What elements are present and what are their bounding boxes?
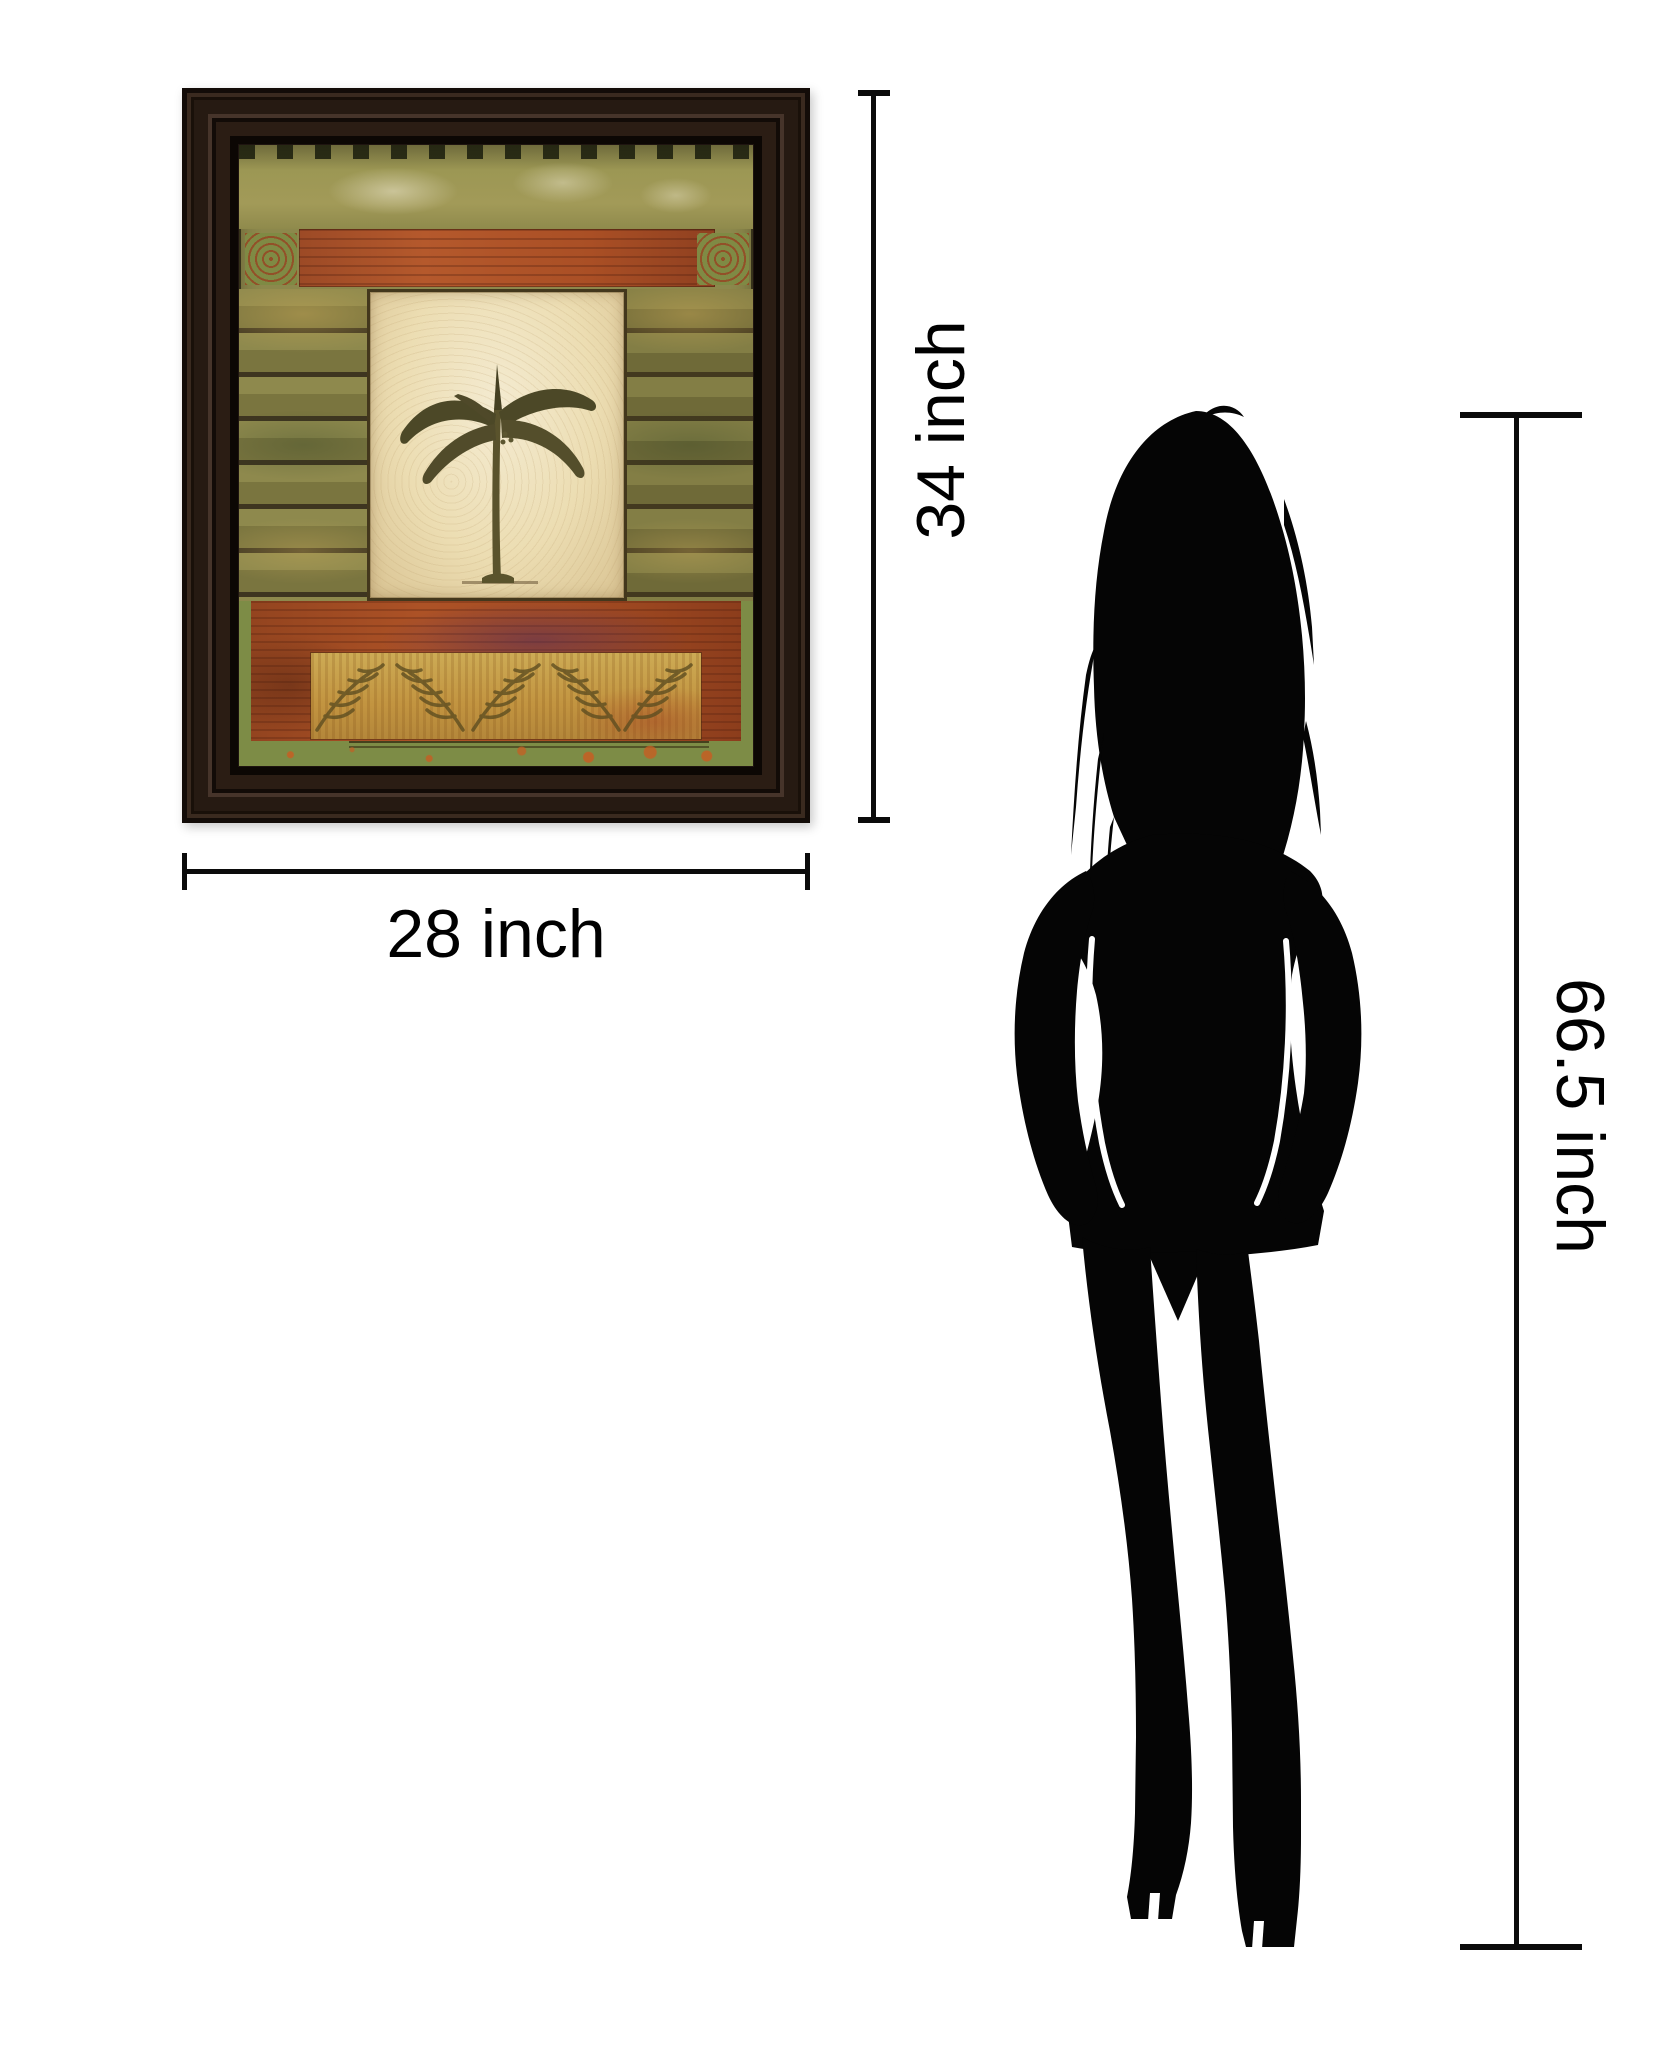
- width-dimension-cap-right: [805, 853, 810, 890]
- width-dimension-label: 28 inch: [386, 900, 605, 968]
- artwork-print: [239, 145, 753, 766]
- spiral-motif-right: [697, 233, 749, 285]
- artwork-top-green-band: [239, 145, 753, 229]
- orange-flecks-texture: [239, 741, 753, 766]
- figure-height-cap-top: [1460, 412, 1582, 418]
- fern-scroll-pattern: [311, 653, 701, 739]
- artwork-upper-red-band: [299, 229, 715, 287]
- height-dimension-cap-bottom: [858, 817, 890, 823]
- product-dimension-image: 34 inch 28 inch 66.5 inch: [0, 0, 1680, 2048]
- figure-height-line: [1514, 415, 1519, 1946]
- spiral-motif-left: [245, 233, 297, 285]
- artwork-top-scuffs-texture: [239, 145, 753, 229]
- artwork-middle-section: [239, 289, 753, 601]
- figure-height-label: 66.5 inch: [1546, 978, 1614, 1254]
- figure-height-cap-bottom: [1460, 1944, 1582, 1950]
- height-dimension-label: 34 inch: [907, 320, 975, 539]
- woman-silhouette: [1000, 403, 1375, 1948]
- cream-center-panel: [367, 289, 627, 601]
- green-slats-left: [239, 289, 367, 601]
- height-dimension-line: [871, 93, 876, 822]
- artwork-bottom-section: [239, 601, 753, 766]
- picture-frame: [182, 88, 810, 823]
- palm-sapling-illustration: [370, 292, 624, 598]
- gold-fern-band: [311, 653, 701, 739]
- green-slats-right: [627, 289, 753, 601]
- width-dimension-line: [184, 869, 808, 874]
